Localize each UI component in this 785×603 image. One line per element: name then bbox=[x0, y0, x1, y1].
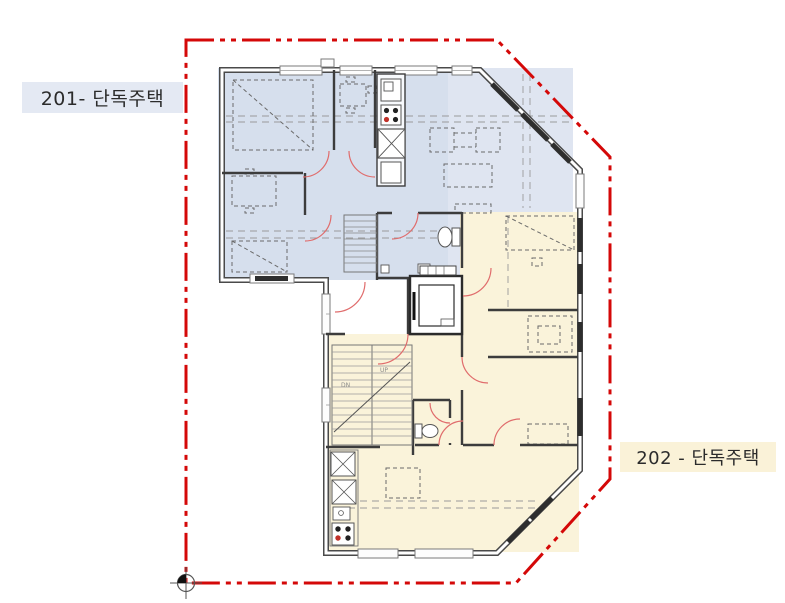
window bbox=[358, 549, 398, 558]
elevator-machine bbox=[420, 266, 456, 275]
unit-202-label: 202 - 단독주택 bbox=[620, 442, 776, 472]
kitchen-201 bbox=[377, 74, 405, 186]
stair-down-label: DN bbox=[341, 382, 350, 389]
bathroom-202 bbox=[415, 424, 438, 438]
stove-201 bbox=[381, 105, 401, 125]
window bbox=[576, 174, 584, 208]
stair-up-label: UP bbox=[380, 367, 388, 374]
survey-benchmark-icon bbox=[170, 567, 202, 599]
elevator bbox=[410, 266, 462, 334]
toilet-201 bbox=[438, 227, 452, 247]
fridge-201 bbox=[381, 162, 401, 183]
stove-202 bbox=[332, 523, 354, 545]
unit-201-label: 201- 단독주택 bbox=[22, 82, 183, 113]
kitchen-202 bbox=[330, 450, 358, 546]
window bbox=[415, 549, 473, 558]
roof-vent bbox=[321, 59, 334, 67]
toilet-202 bbox=[422, 425, 438, 438]
